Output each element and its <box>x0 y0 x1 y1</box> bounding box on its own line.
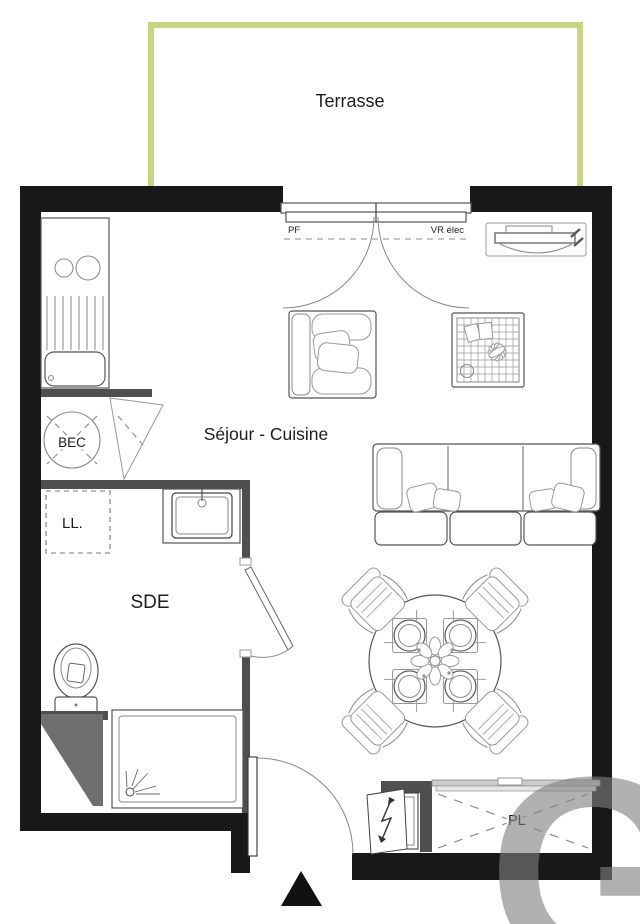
entrance-door-swing <box>257 758 353 854</box>
sde-door-leaf <box>245 567 293 650</box>
entrance-door-leaf <box>248 757 257 856</box>
water-heater: BEC <box>44 398 163 479</box>
watermark-logo: G <box>488 722 640 924</box>
sofa-pillow-2 <box>433 488 462 512</box>
terrace: Terrasse <box>151 25 580 190</box>
door-jamb-bottom <box>240 650 251 657</box>
toilet <box>54 644 98 714</box>
electrical-panel <box>367 781 432 854</box>
water-heater-label: BEC <box>58 435 86 450</box>
french-window: PF VR élec <box>281 203 471 308</box>
armchair-cushion-2 <box>317 342 360 374</box>
wall-left <box>20 186 41 831</box>
sde-wall-upper <box>242 480 250 564</box>
washing-machine-zone: LL. <box>46 491 110 553</box>
sde-door-swing <box>251 648 291 657</box>
living-kitchen-label: Séjour - Cuisine <box>204 424 329 444</box>
shower-drain <box>126 788 134 796</box>
shutter-label: VR élec <box>431 225 465 236</box>
window-label: PF <box>288 225 300 236</box>
panel-wall-right <box>420 781 432 852</box>
toilet-button <box>75 704 78 707</box>
duct-wedge <box>41 714 103 806</box>
sofa <box>373 444 600 545</box>
terrace-label: Terrasse <box>315 91 384 111</box>
rug-book-right <box>478 322 493 339</box>
shower-room-label: SDE <box>130 592 169 613</box>
bec-door-wedge <box>110 398 163 479</box>
rug <box>452 313 524 387</box>
wall-top-left <box>20 186 283 212</box>
wall-bottom-left <box>20 813 250 831</box>
toilet-lid <box>67 663 85 683</box>
kitchen-counter <box>41 218 152 397</box>
wall-top-right <box>470 186 612 212</box>
shower <box>112 710 243 808</box>
washing-machine-label: LL. <box>62 515 83 532</box>
wall-step <box>231 813 250 873</box>
floor-plan: Terrasse PF VR élec <box>0 0 640 924</box>
radiator <box>486 223 586 256</box>
counter-end-wall <box>41 389 152 397</box>
entrance-marker-triangle <box>281 871 322 906</box>
armchair <box>289 311 376 398</box>
sde-wall-top <box>41 480 250 489</box>
duct-shade <box>41 711 108 806</box>
sofa-seat-3 <box>524 512 596 545</box>
entrance-door <box>248 757 353 906</box>
sofa-seat-1 <box>375 512 447 545</box>
radiator-bar <box>495 233 575 243</box>
panel-door <box>367 789 407 854</box>
washbasin <box>163 489 240 543</box>
door-jamb-top <box>240 558 251 565</box>
sofa-seat-2 <box>450 512 521 545</box>
kitchen-sink <box>45 352 105 386</box>
